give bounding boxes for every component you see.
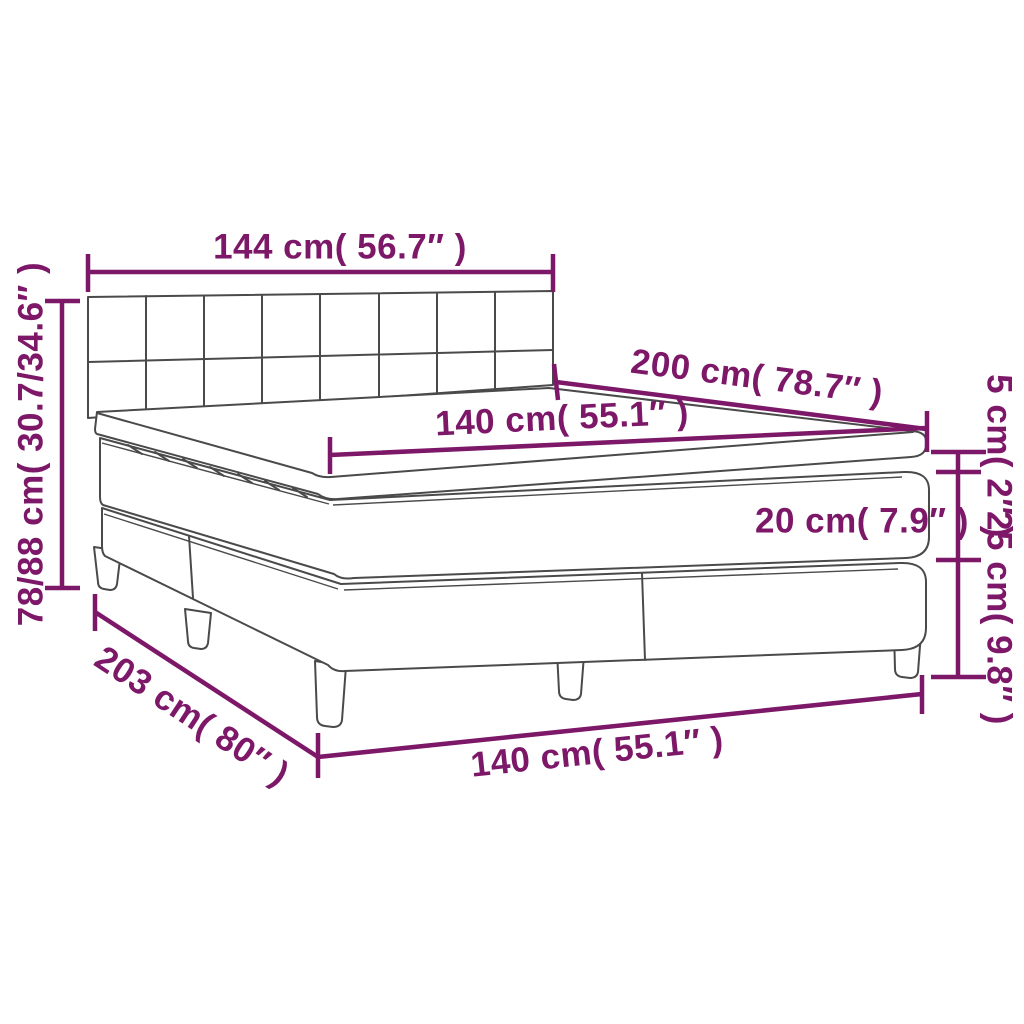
dim-headboard-width-label: 144 cm( 56.7″ ) — [213, 228, 467, 267]
dim-base-height-label: 25 cm( 9.8″ ) — [980, 511, 1019, 725]
bed-dimension-diagram: 144 cm( 56.7″ ) 78/88 cm( 30.7/34.6″ ) 2… — [0, 0, 1024, 1024]
dim-mattress-width-bottom: 140 cm( 55.1″ ) — [318, 675, 922, 785]
diagram-canvas: 144 cm( 56.7″ ) 78/88 cm( 30.7/34.6″ ) 2… — [0, 0, 1024, 1024]
dim-headboard-width: 144 cm( 56.7″ ) — [88, 228, 553, 293]
dim-base-length-label: 203 cm( 80″ ) — [88, 638, 296, 793]
dim-mattress-thickness-label: 20 cm( 7.9″ ) — [755, 502, 969, 541]
dim-overall-height: 78/88 cm( 30.7/34.6″ ) — [12, 262, 81, 626]
leg-side-middle — [185, 609, 211, 649]
dim-overall-height-label: 78/88 cm( 30.7/34.6″ ) — [12, 262, 51, 626]
